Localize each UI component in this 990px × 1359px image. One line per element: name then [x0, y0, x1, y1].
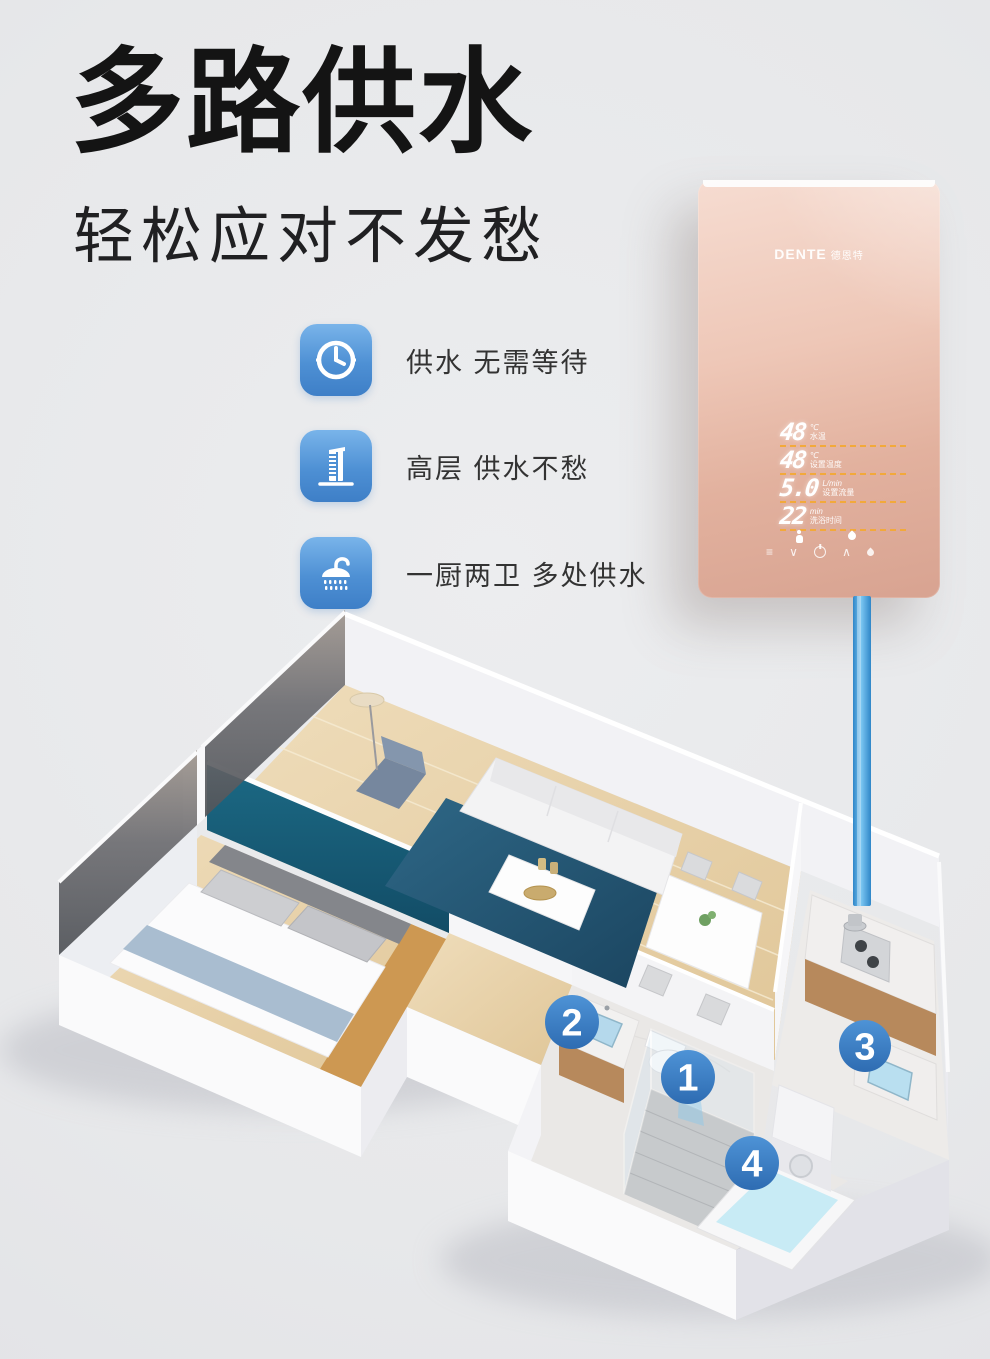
heater-display: 48 ℃水温 48 ℃设置温度 5.0 L/min设置流量 22 min洗浴时间 — [780, 422, 906, 534]
brand-logo: DENTE德恩特 — [698, 246, 940, 264]
set-flow-value: 5.0 — [779, 478, 819, 498]
set-temp-unit: ℃ — [810, 451, 842, 460]
feature-label: 供水 无需等待 — [406, 341, 590, 380]
set-flow-label: 设置流量 — [822, 488, 854, 498]
bath-time-unit: min — [810, 507, 842, 516]
feature-row-instant-supply: 供水 无需等待 — [300, 324, 590, 396]
power-icon[interactable] — [814, 546, 826, 558]
feature-row-high-floor: 高层 供水不愁 — [300, 430, 590, 502]
water-temp-value: 48 — [779, 422, 806, 442]
menu-icon[interactable]: ≡ — [766, 546, 773, 558]
bath-time-label: 洗浴时间 — [810, 516, 842, 526]
marker-1-number: 1 — [677, 1058, 698, 1100]
heater-touch-controls: ≡ ∨ ∧ — [766, 546, 874, 558]
marker-4-bathtub: 4 — [725, 1136, 779, 1190]
spray-icon[interactable] — [866, 547, 876, 557]
marker-2-vanity: 2 — [545, 995, 599, 1049]
feature-label: 高层 供水不愁 — [406, 447, 590, 486]
person-shower-icon — [794, 530, 804, 543]
marker-1-shower: 1 — [661, 1050, 715, 1104]
set-temp-label: 设置温度 — [810, 460, 842, 470]
temp-down-icon[interactable]: ∨ — [789, 546, 798, 558]
marker-4-number: 4 — [741, 1144, 762, 1186]
heater-indicator-row — [794, 530, 856, 543]
brand-name: DENTE — [774, 246, 826, 262]
promo-page: { "page": {"background": "#e8e9eb"}, "he… — [0, 0, 990, 1359]
page-title: 多路供水 — [70, 40, 630, 168]
water-heater-unit: DENTE德恩特 48 ℃水温 48 ℃设置温度 5.0 L/min设置流量 2… — [698, 180, 940, 598]
display-row-bath-time: 22 min洗浴时间 — [780, 506, 906, 531]
water-drop-icon — [846, 530, 857, 541]
page-subtitle: 轻松应对不发愁 — [73, 186, 633, 275]
bath-time-value: 22 — [779, 506, 806, 526]
water-temp-label: 水温 — [810, 432, 826, 442]
building-icon — [300, 430, 372, 502]
display-row-set-temp: 48 ℃设置温度 — [780, 450, 906, 475]
temp-up-icon[interactable]: ∧ — [842, 546, 851, 558]
water-pipe — [853, 596, 871, 906]
set-temp-value: 48 — [779, 450, 806, 470]
marker-2-number: 2 — [561, 1003, 582, 1045]
marker-3-kitchen-sink: 3 — [839, 1020, 891, 1072]
clock-icon — [300, 324, 372, 396]
brand-name-cn: 德恩特 — [831, 251, 864, 262]
floorplan-3d: 1 2 3 4 — [0, 570, 990, 1359]
display-row-water-temp: 48 ℃水温 — [780, 422, 906, 447]
set-flow-unit: L/min — [822, 479, 854, 488]
marker-3-number: 3 — [854, 1027, 875, 1069]
water-temp-unit: ℃ — [810, 423, 826, 432]
display-row-set-flow: 5.0 L/min设置流量 — [780, 478, 906, 503]
